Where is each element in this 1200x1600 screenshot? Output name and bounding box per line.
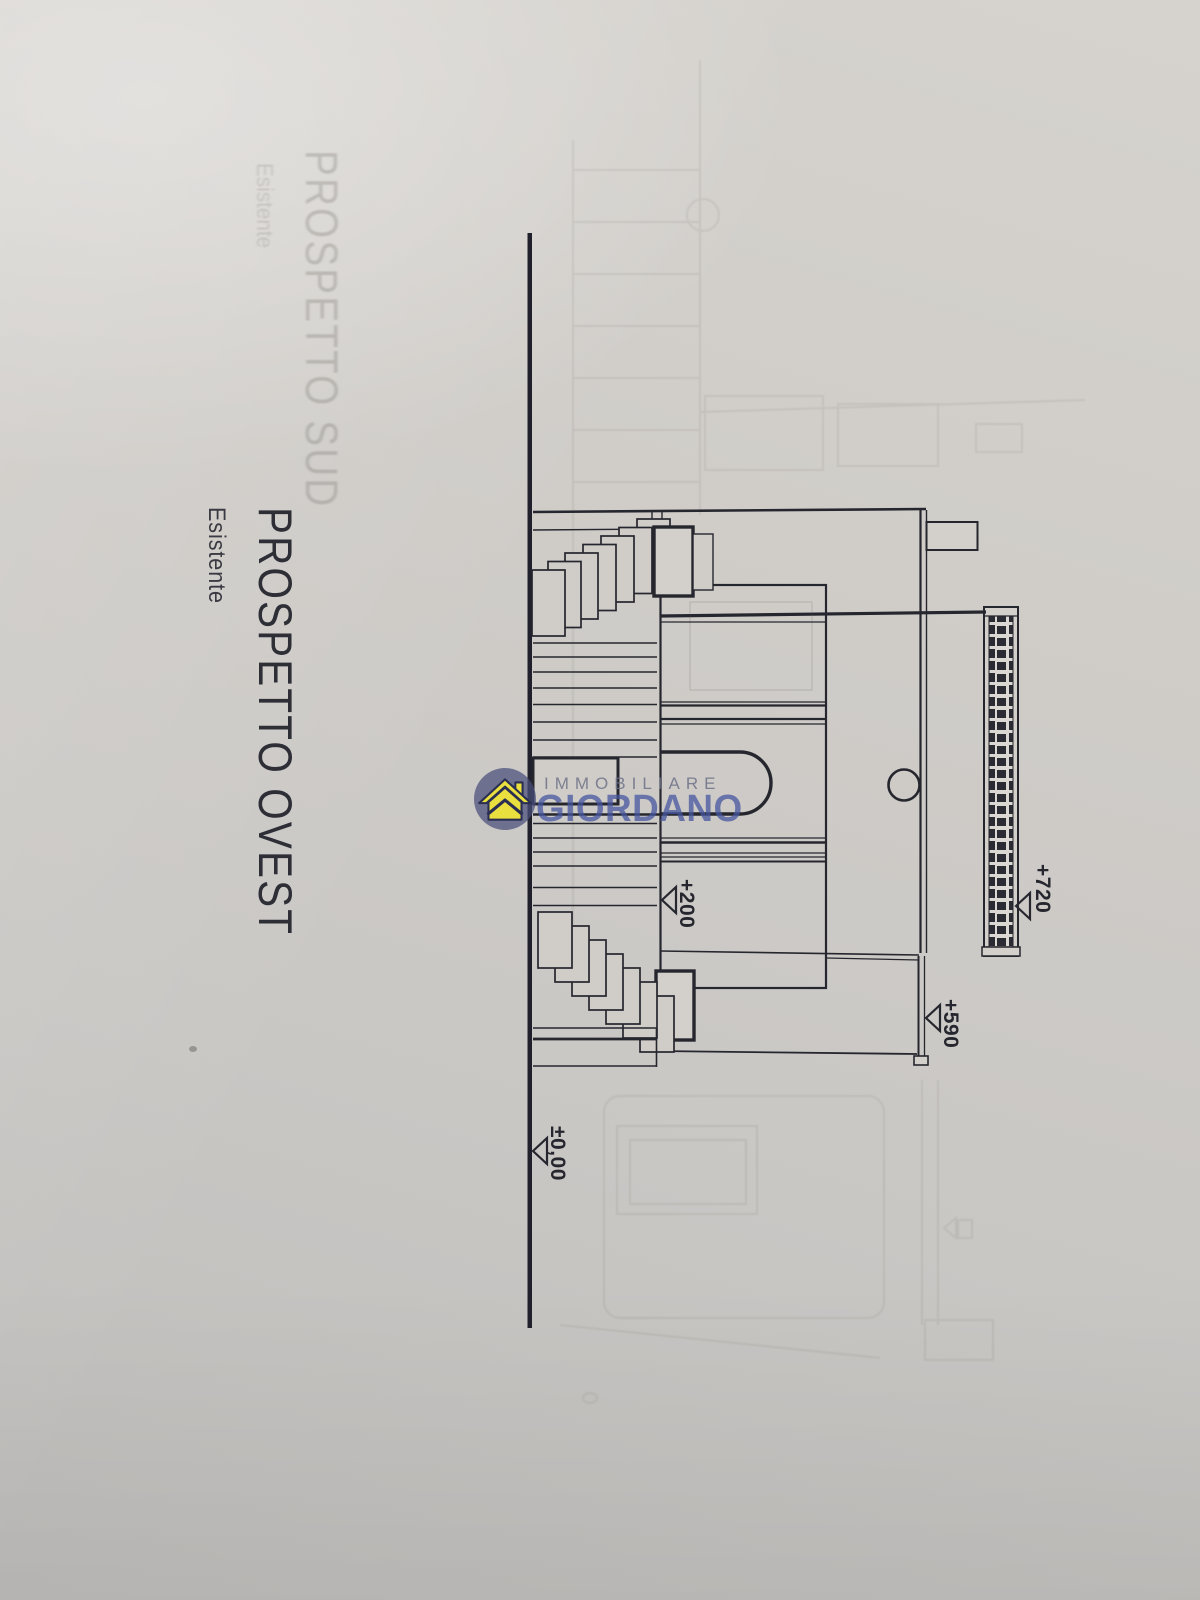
level-marker-terrace-icon xyxy=(662,887,676,913)
chimney xyxy=(927,522,978,550)
house-icon xyxy=(474,768,536,830)
staircase-upper xyxy=(532,519,713,636)
drawing-subtitle: Esistente xyxy=(202,507,230,604)
agency-watermark: IMMOBILIARE GIORDANO xyxy=(450,738,770,842)
watermark-brand-bottom: GIORDANO xyxy=(536,788,743,831)
level-label-eave: +590 xyxy=(939,999,962,1048)
staircase-lower xyxy=(538,912,694,1052)
level-label-roof: +720 xyxy=(1031,864,1054,913)
level-label-terrace: +200 xyxy=(675,879,698,928)
round-window xyxy=(889,770,920,801)
dust-speck xyxy=(189,1046,197,1052)
drawing-title: PROSPETTO OVEST xyxy=(248,507,303,936)
level-marker-ground-icon xyxy=(533,1138,547,1164)
level-marker-eave-icon xyxy=(926,1005,940,1031)
level-label-ground: ±0,00 xyxy=(546,1126,569,1181)
scanned-elevation-page: PROSPETTO SUD Esistente xyxy=(0,0,1200,1600)
